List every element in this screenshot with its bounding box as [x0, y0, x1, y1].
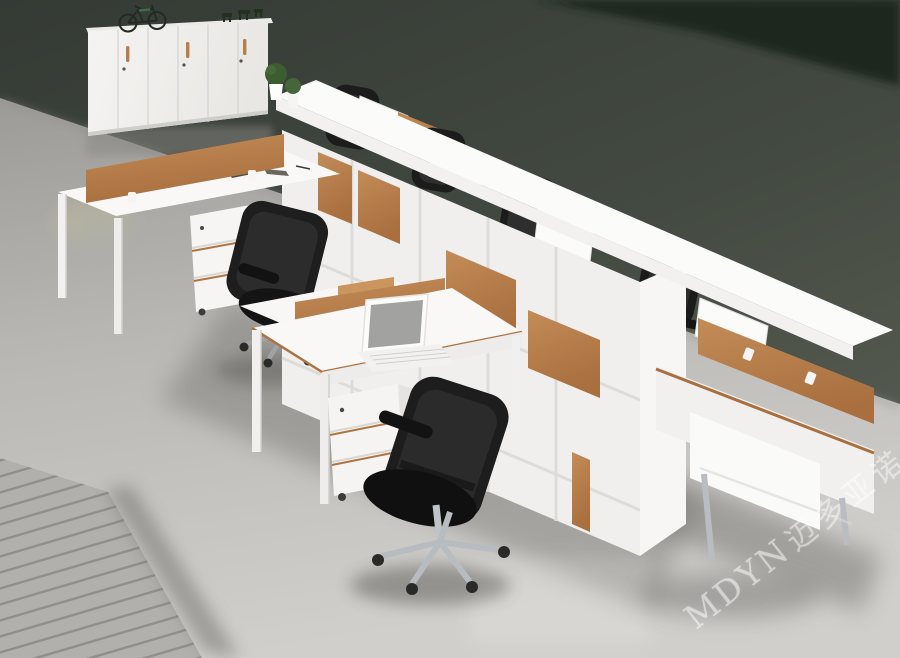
keyhole	[340, 408, 344, 412]
office-render-stage: MDYN迈多亚诺	[0, 0, 900, 658]
keyhole	[200, 226, 204, 230]
office-render	[0, 0, 900, 658]
screen-clip	[128, 192, 136, 203]
screen-clip	[248, 170, 256, 181]
